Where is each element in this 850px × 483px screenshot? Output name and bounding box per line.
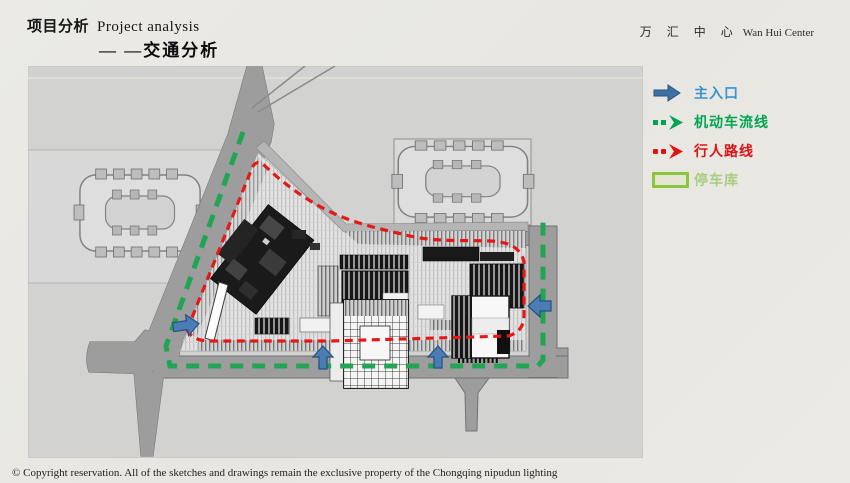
legend-item-main-entrance: 主入口 (652, 78, 842, 107)
brand-logo-zh: 万 汇 中 心 (640, 25, 739, 39)
legend-label-parking: 停车库 (694, 170, 739, 190)
legend-item-pedestrian-route: 行人路线 (652, 136, 842, 165)
site-plan-drawing (28, 66, 643, 458)
white-tower-east (452, 296, 510, 363)
brand-logo-en: Wan Hui Center (743, 27, 814, 39)
residential-building-footprint-right (392, 141, 534, 223)
legend-item-parking: 停车库 (652, 165, 842, 194)
pedestrian-route-dashed-arrow-icon (652, 142, 694, 160)
brand-logo: 万 汇 中 心 Wan Hui Center (640, 23, 814, 41)
page-title-zh: 项目分析 (27, 19, 89, 35)
legend: 主入口 机动车流线 行人路线 (652, 78, 842, 194)
page-subtitle: — —交通分析 (99, 36, 219, 61)
grid-building-south (330, 300, 408, 388)
page-title: 项目分析Project analysis (27, 15, 200, 36)
page-title-en: Project analysis (97, 19, 200, 35)
legend-item-vehicle-route: 机动车流线 (652, 107, 842, 136)
vehicle-route-dashed-arrow-icon (652, 113, 694, 131)
copyright-notice: © Copyright reservation. All of the sket… (12, 467, 557, 479)
legend-label-vehicle-route: 机动车流线 (694, 112, 769, 132)
legend-label-pedestrian-route: 行人路线 (694, 141, 754, 161)
main-entrance-arrow-icon (652, 84, 694, 102)
legend-label-main-entrance: 主入口 (694, 83, 739, 103)
parking-garage-swatch-icon (652, 172, 694, 188)
slide: 项目分析Project analysis — —交通分析 万 汇 中 心 Wan… (0, 0, 850, 483)
